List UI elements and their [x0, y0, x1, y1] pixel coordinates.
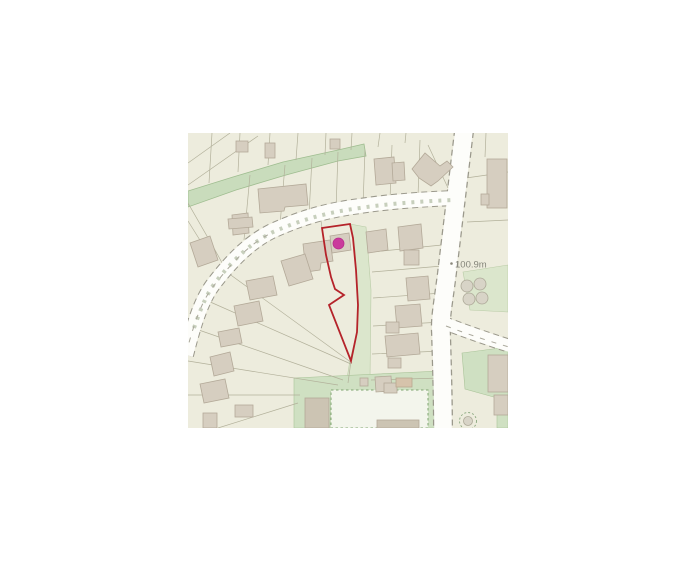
building-bottom — [377, 420, 419, 428]
building-outbuilding-left — [305, 398, 329, 428]
building-tan — [396, 378, 412, 387]
spot-height-label: 100.9m — [455, 260, 487, 271]
map-canvas: 100.9m — [188, 133, 508, 428]
site-plan-map-image[interactable]: 100.9m — [188, 133, 508, 428]
spot-height-dot — [450, 262, 453, 265]
page: { "map": { "kind": "property-site-plan",… — [0, 0, 696, 564]
property-location-marker — [333, 238, 344, 249]
